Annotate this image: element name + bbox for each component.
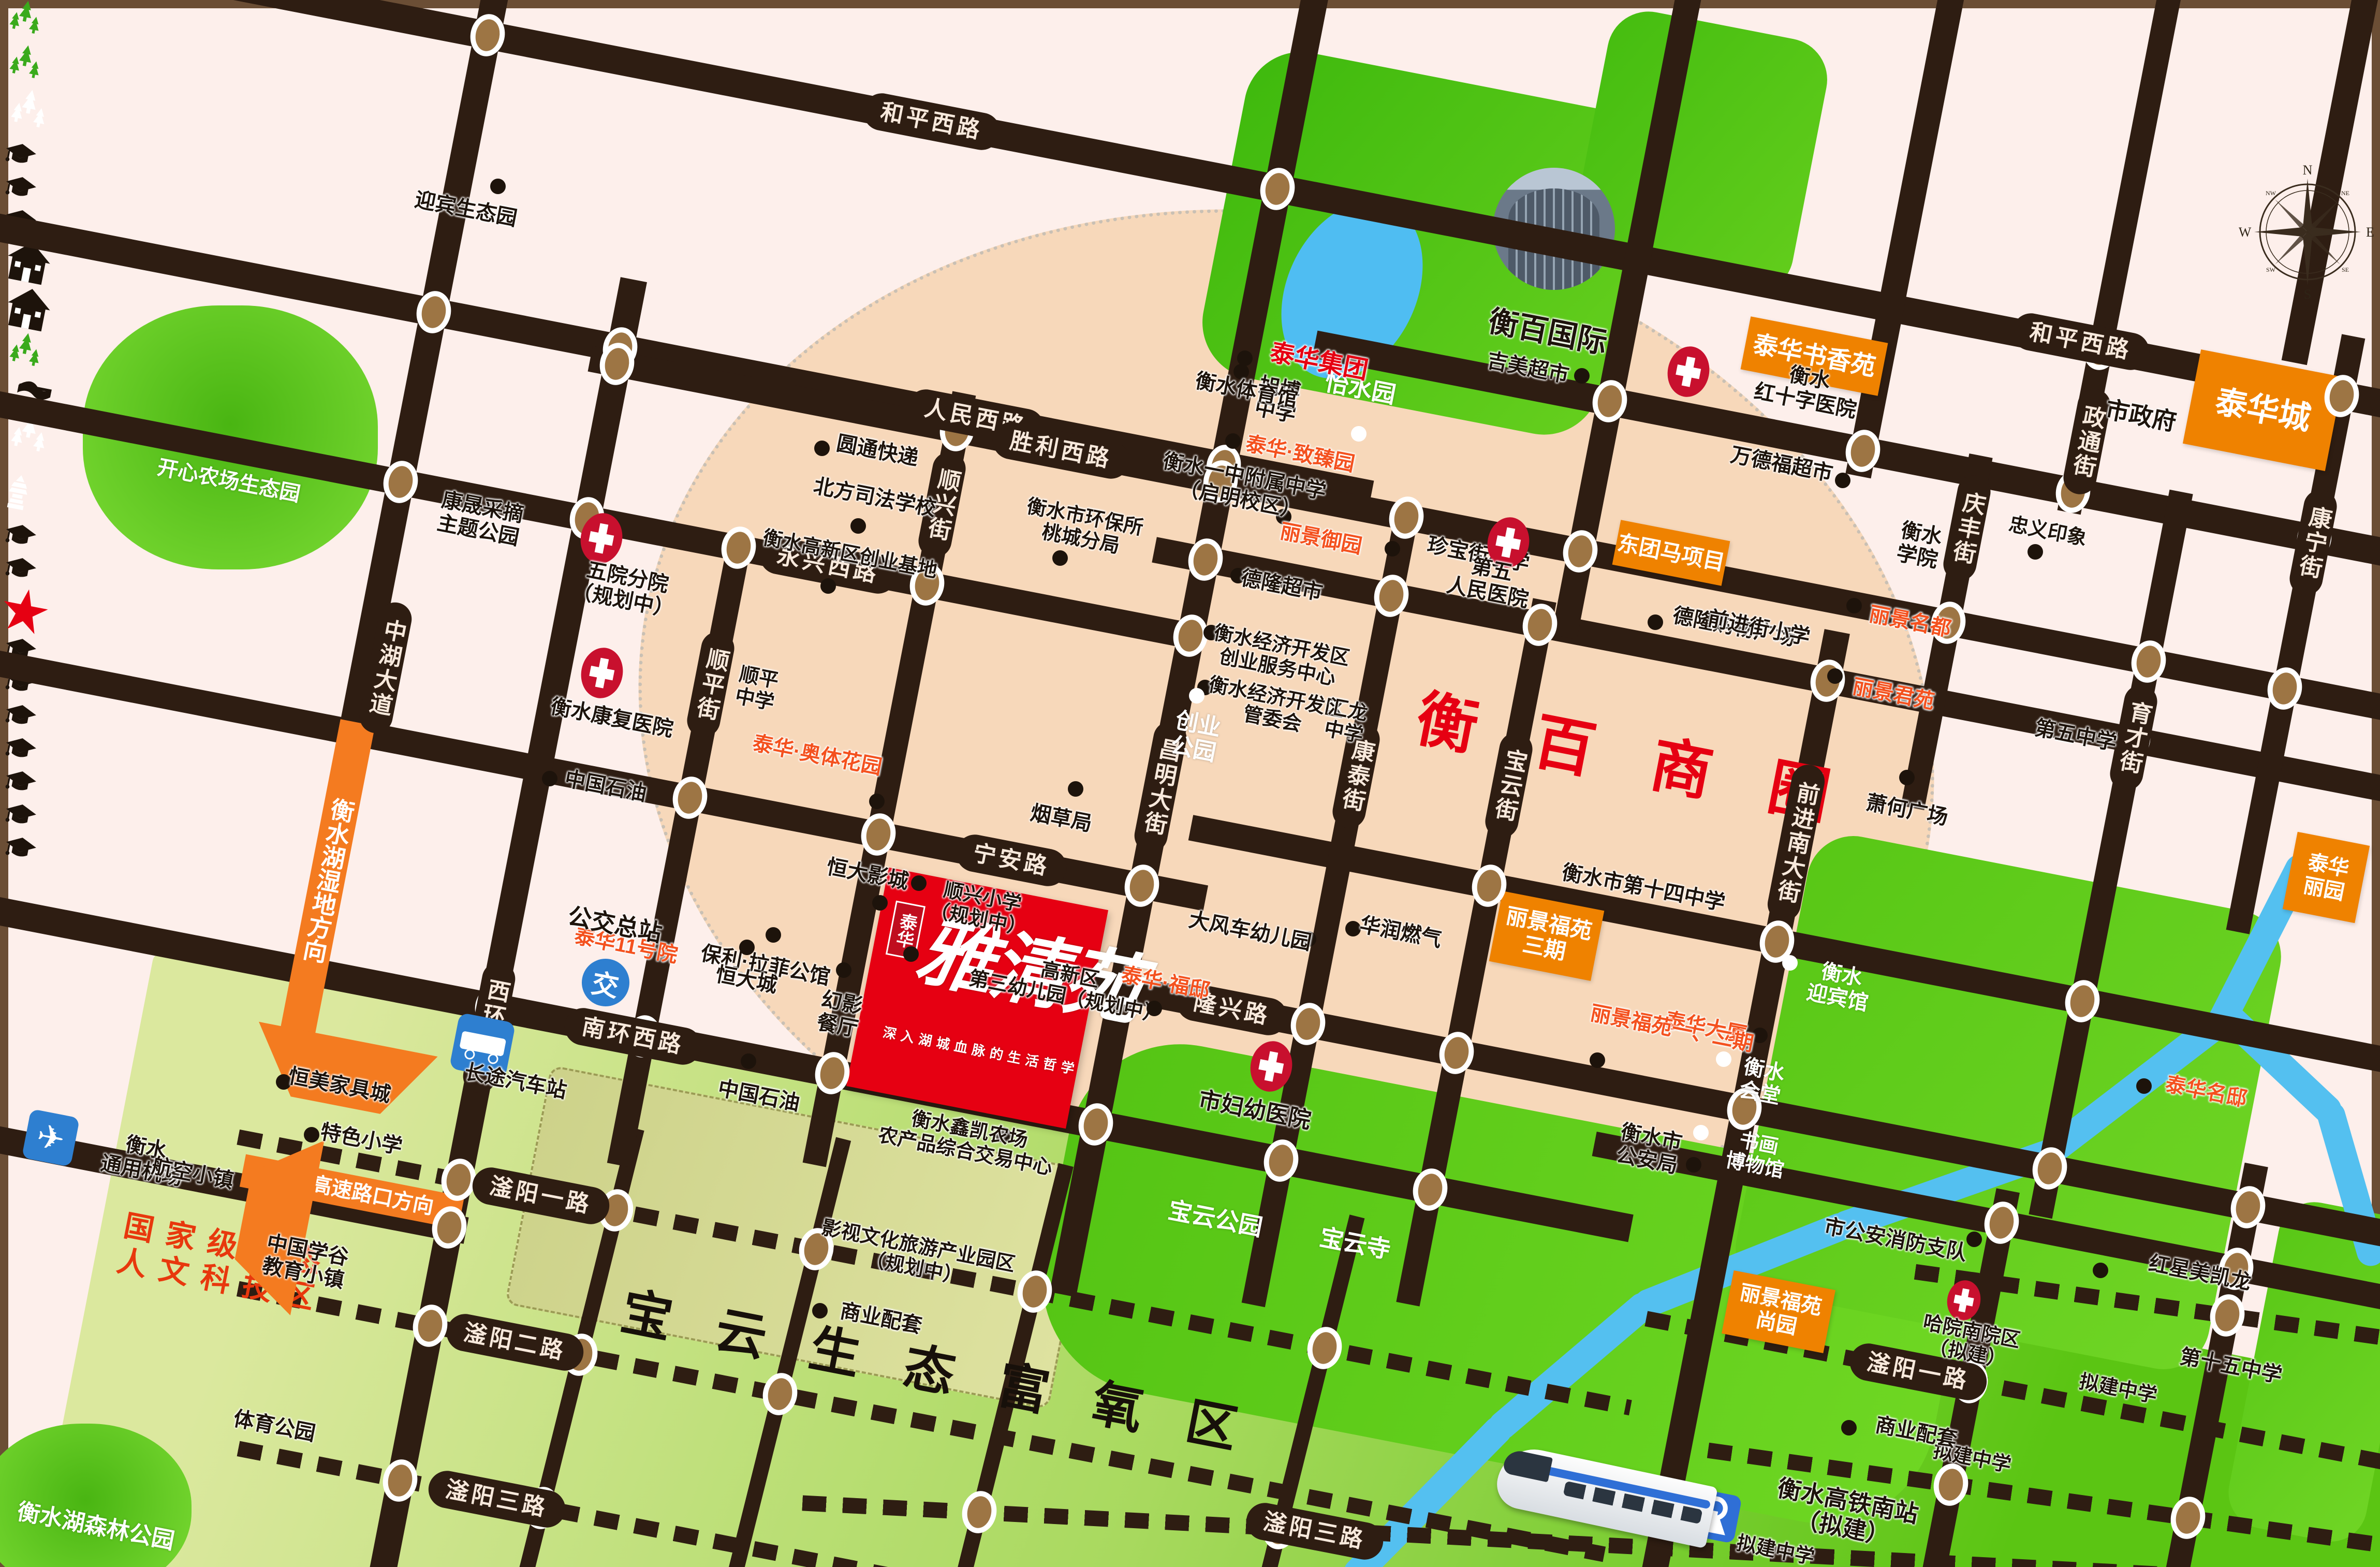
- phantom-restaurant-label: 幻影 餐厅: [815, 988, 864, 1042]
- taihua-mingdi-dot: [2136, 1078, 2152, 1094]
- zhongyi-impression-dot: [2028, 544, 2043, 560]
- tobacco-bureau-dot: [1068, 781, 1083, 797]
- lijing-mingdu-dot: [1846, 598, 1862, 613]
- road-label-16: 庆丰街: [1941, 473, 1993, 583]
- shunxing-primary-dot: [911, 875, 927, 891]
- tese-primary-dot: [304, 1127, 319, 1143]
- kaixin-farm-trees-icon: [0, 84, 61, 144]
- bus-terminal-transit-icon: 交: [578, 955, 634, 1011]
- zhongyi-impression-label: 忠义印象: [2007, 514, 2088, 550]
- evergrande-city-dot: [739, 940, 755, 955]
- evergrande-cinema-dot: [872, 895, 888, 911]
- third-kindergarten-dot: [903, 946, 919, 962]
- compass-rose: NESWNWNESESW: [2239, 163, 2376, 301]
- project-box-2: 泰华城: [2183, 349, 2343, 471]
- gaoxin-startup-base-dot: [820, 578, 836, 594]
- svg-text:W: W: [2239, 225, 2252, 240]
- calligraphy-museum-dot: [1693, 1125, 1709, 1140]
- yingbin-eco-garden-dot: [490, 179, 506, 194]
- taihua-fudi-dot: [1147, 1001, 1162, 1016]
- svg-text:NE: NE: [2341, 189, 2349, 197]
- petrochina-south-dot: [741, 1053, 756, 1069]
- baoyun-temple-pagoda-icon: [0, 461, 41, 523]
- city-government-star-icon: [0, 583, 54, 639]
- lijing-junyuan-dot: [1827, 668, 1843, 684]
- svg-text:S: S: [2304, 287, 2311, 301]
- kangfu-hospital-hospital-icon: [577, 644, 627, 701]
- fire-brigade-dot: [1966, 1232, 1982, 1247]
- lijing-fuyuan-12-dot: [1590, 1052, 1605, 1068]
- yingbin-hotel-dot: [1782, 955, 1798, 971]
- project-tagline: 深入湖城血脉的生活哲学: [882, 1025, 1080, 1078]
- north-judicial-school-dot: [850, 518, 866, 534]
- taihua-group-dot: [1237, 350, 1253, 366]
- lijing-yuyuan-dot: [1385, 541, 1400, 556]
- petrochina-west-dot: [542, 771, 557, 786]
- xiaohe-plaza-dot: [1899, 770, 1915, 785]
- svg-text:E: E: [2366, 225, 2374, 240]
- jimei-supermarket-dot: [1574, 368, 1590, 384]
- delong-shopping-plaza-dot: [1648, 614, 1663, 630]
- yishui-garden-dot: [1351, 426, 1367, 442]
- phantom-restaurant-dot: [836, 962, 851, 978]
- epa-taocheng-branch-dot: [1052, 550, 1068, 566]
- huilong-middle-label: 汇龙 中学: [1323, 696, 1370, 746]
- commercial-support-e-dot: [1841, 1420, 1857, 1436]
- location-map: 和平西路和平西路人民西路胜利西路永兴西路宁安路隆兴路南环西路中湖大道西环南路顺平…: [0, 0, 2380, 1567]
- red-star-macalline-dot: [2093, 1263, 2108, 1278]
- poly-lafite-mansion-dot: [766, 927, 781, 943]
- wandefu-supermarket-dot: [1835, 473, 1850, 488]
- road-label-0: 和平西路: [860, 90, 1004, 153]
- taihua-aoti-garden-dot: [869, 794, 885, 809]
- startup-park-dot: [1189, 688, 1204, 704]
- svg-text:NW: NW: [2266, 189, 2276, 197]
- general-airport-plane-icon: ✈: [22, 1109, 80, 1167]
- hengshui-university-label: 衡水 学院: [1894, 519, 1944, 573]
- svg-text:N: N: [2303, 163, 2313, 178]
- hengshui-hall-label: 衡水 会堂: [1737, 1056, 1787, 1109]
- svg-text:SE: SE: [2342, 266, 2349, 273]
- yto-express-dot: [814, 441, 830, 456]
- commercial-support-w-dot: [812, 1303, 828, 1319]
- shunping-middle-label: 顺平 中学: [733, 663, 781, 714]
- road-v9: [1845, 0, 1973, 479]
- planned-middle-c-school-icon: [0, 830, 43, 870]
- city-government-label: 市政府: [2103, 396, 2178, 436]
- road-label-1: 和平西路: [2009, 310, 2153, 373]
- taihua-zhizhen-garden-dot: [1225, 433, 1241, 449]
- hengshui-hall-dot: [1716, 1051, 1731, 1067]
- project-box-4: 泰华 丽园: [2283, 832, 2370, 923]
- hengshui-lake-wetland-direction-label: 衡水湖湿地方向: [298, 796, 356, 964]
- startup-park-label: 创业 公园: [1168, 707, 1223, 766]
- road-label-15: 政通街: [2061, 386, 2113, 497]
- svg-text:SW: SW: [2266, 266, 2276, 273]
- public-security-bureau-dot: [1686, 1157, 1701, 1173]
